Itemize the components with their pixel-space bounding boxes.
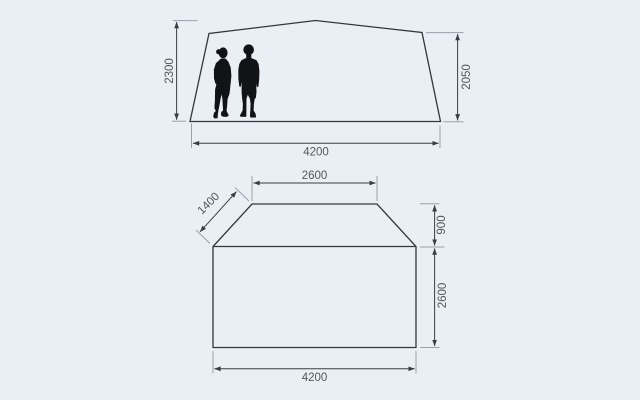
svg-text:4200: 4200 <box>303 147 329 159</box>
svg-text:2300: 2300 <box>164 58 176 84</box>
svg-text:900: 900 <box>436 215 448 234</box>
svg-text:4200: 4200 <box>302 372 328 384</box>
svg-text:2600: 2600 <box>437 283 449 309</box>
svg-text:2050: 2050 <box>461 64 473 90</box>
svg-text:2600: 2600 <box>302 170 328 182</box>
